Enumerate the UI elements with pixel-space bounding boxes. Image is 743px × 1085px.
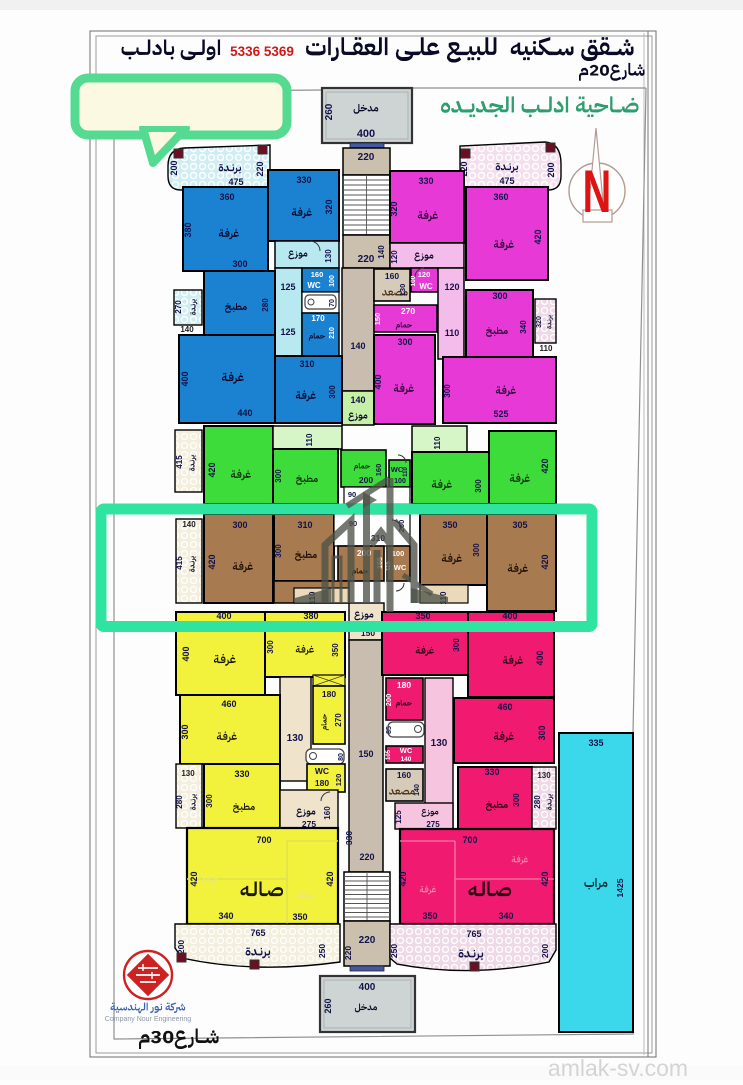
svg-text:310: 310: [299, 359, 314, 369]
svg-text:340: 340: [498, 911, 513, 921]
svg-text:140: 140: [350, 341, 365, 351]
svg-text:130: 130: [431, 738, 448, 749]
svg-text:270: 270: [401, 306, 415, 316]
svg-text:110: 110: [403, 467, 409, 477]
svg-text:380: 380: [183, 222, 193, 237]
svg-text:130: 130: [287, 733, 304, 744]
svg-text:100: 100: [392, 549, 405, 558]
svg-text:330: 330: [234, 769, 249, 779]
svg-text:130: 130: [537, 771, 551, 780]
svg-text:70: 70: [329, 299, 336, 307]
svg-text:200: 200: [359, 475, 373, 485]
svg-text:400: 400: [359, 982, 376, 993]
svg-text:400: 400: [535, 650, 545, 665]
svg-text:85: 85: [386, 726, 393, 734]
svg-text:220: 220: [358, 152, 375, 163]
svg-text:140: 140: [350, 395, 365, 405]
svg-text:Company Nour Engineering: Company Nour Engineering: [105, 1016, 191, 1023]
svg-text:350: 350: [422, 911, 437, 921]
svg-text:300: 300: [180, 724, 190, 739]
svg-text:WC: WC: [391, 465, 404, 474]
svg-text:120: 120: [390, 250, 399, 264]
svg-text:200: 200: [176, 940, 186, 954]
svg-text:110: 110: [433, 436, 442, 449]
svg-text:210: 210: [329, 327, 336, 339]
svg-text:220: 220: [343, 946, 353, 960]
svg-text:100: 100: [410, 275, 417, 286]
svg-text:120: 120: [334, 774, 343, 787]
svg-text:260: 260: [324, 103, 335, 120]
svg-text:320: 320: [389, 201, 399, 216]
svg-text:amlak-sv.com: amlak-sv.com: [548, 1055, 688, 1080]
svg-text:130: 130: [398, 284, 407, 297]
svg-text:120: 120: [418, 270, 431, 279]
svg-text:110: 110: [445, 328, 460, 338]
svg-text:110: 110: [305, 433, 314, 446]
svg-text:330: 330: [344, 831, 354, 845]
svg-text:280: 280: [533, 795, 542, 809]
svg-text:280: 280: [261, 298, 270, 312]
svg-text:420: 420: [398, 871, 408, 886]
svg-text:300: 300: [397, 337, 412, 347]
svg-text:330: 330: [296, 175, 311, 185]
svg-text:160: 160: [374, 464, 383, 477]
svg-text:475: 475: [499, 176, 514, 186]
svg-text:700: 700: [462, 835, 477, 845]
svg-text:350: 350: [292, 912, 307, 922]
svg-text:300: 300: [274, 544, 283, 558]
svg-text:5336 5369: 5336 5369: [230, 44, 294, 59]
svg-text:180: 180: [315, 778, 329, 788]
svg-text:340: 340: [519, 320, 528, 334]
svg-text:130: 130: [181, 769, 195, 778]
svg-text:300: 300: [328, 385, 337, 399]
svg-text:200: 200: [540, 944, 550, 958]
svg-text:475: 475: [228, 177, 243, 187]
svg-text:160: 160: [311, 270, 324, 279]
svg-text:420: 420: [325, 871, 335, 886]
svg-text:125: 125: [394, 810, 403, 824]
svg-text:300: 300: [443, 384, 452, 398]
svg-text:420: 420: [189, 871, 199, 886]
svg-text:400: 400: [180, 371, 190, 386]
svg-text:280: 280: [175, 795, 184, 809]
svg-text:220: 220: [358, 254, 375, 265]
svg-text:105: 105: [386, 749, 392, 760]
svg-text:130: 130: [324, 249, 333, 263]
svg-text:N: N: [583, 158, 612, 225]
svg-text:460: 460: [221, 699, 236, 709]
svg-text:350: 350: [442, 520, 457, 530]
svg-text:140: 140: [414, 784, 421, 796]
svg-text:765: 765: [466, 929, 481, 939]
svg-text:340: 340: [218, 911, 233, 921]
svg-text:420: 420: [540, 458, 550, 473]
svg-text:400: 400: [181, 646, 191, 661]
svg-text:420: 420: [540, 554, 550, 569]
svg-text:380: 380: [303, 611, 318, 621]
svg-text:420: 420: [207, 554, 217, 569]
svg-text:WC: WC: [394, 563, 407, 572]
svg-text:300: 300: [474, 479, 483, 493]
svg-text:80: 80: [338, 753, 345, 761]
svg-text:300: 300: [512, 793, 521, 807]
svg-text:110: 110: [540, 344, 553, 353]
svg-text:150: 150: [358, 749, 373, 759]
svg-text:270: 270: [334, 713, 343, 727]
svg-text:440: 440: [237, 408, 252, 418]
svg-text:300: 300: [492, 291, 507, 301]
svg-text:300: 300: [537, 725, 547, 740]
svg-text:220: 220: [359, 852, 374, 862]
svg-text:WC: WC: [315, 766, 329, 776]
svg-text:220: 220: [359, 935, 376, 946]
svg-text:200: 200: [384, 694, 393, 707]
svg-text:140: 140: [180, 325, 194, 334]
svg-text:330: 330: [484, 767, 499, 777]
svg-text:420: 420: [207, 462, 217, 477]
svg-text:525: 525: [493, 409, 508, 419]
svg-text:415: 415: [175, 556, 184, 570]
svg-text:100: 100: [394, 478, 406, 485]
svg-text:125: 125: [280, 282, 295, 292]
svg-text:275: 275: [426, 820, 440, 829]
svg-text:305: 305: [512, 520, 527, 530]
svg-text:200: 200: [169, 160, 179, 175]
svg-text:330: 330: [418, 176, 433, 186]
svg-text:420: 420: [540, 871, 550, 886]
svg-text:250: 250: [317, 944, 327, 958]
svg-text:125: 125: [280, 327, 295, 337]
svg-text:170: 170: [311, 314, 325, 323]
svg-text:250: 250: [389, 944, 399, 958]
svg-text:460: 460: [497, 702, 512, 712]
svg-text:150: 150: [373, 313, 382, 326]
svg-text:180: 180: [397, 680, 411, 690]
svg-text:300: 300: [274, 469, 283, 483]
svg-text:300: 300: [266, 640, 275, 654]
svg-text:335: 335: [588, 738, 603, 748]
svg-text:300: 300: [472, 543, 481, 557]
svg-text:360: 360: [219, 192, 234, 202]
svg-text:WC: WC: [307, 281, 321, 290]
svg-text:WC: WC: [400, 746, 413, 755]
svg-text:400: 400: [216, 611, 231, 621]
svg-text:350: 350: [331, 643, 340, 657]
svg-text:400: 400: [502, 611, 517, 621]
svg-text:140: 140: [401, 756, 412, 763]
svg-text:120: 120: [444, 282, 459, 292]
svg-text:160: 160: [323, 806, 332, 820]
svg-text:160: 160: [397, 770, 411, 780]
svg-text:415: 415: [175, 455, 184, 469]
svg-text:360: 360: [493, 192, 508, 202]
svg-text:180: 180: [322, 689, 336, 699]
svg-text:700: 700: [256, 835, 271, 845]
svg-text:140: 140: [377, 245, 386, 259]
svg-text:WC: WC: [419, 282, 433, 291]
svg-text:200: 200: [546, 162, 556, 177]
svg-text:310: 310: [297, 520, 312, 530]
svg-text:260: 260: [323, 998, 333, 1013]
svg-text:765: 765: [250, 928, 265, 938]
svg-text:220: 220: [255, 161, 265, 176]
svg-text:140: 140: [182, 520, 196, 529]
svg-text:300: 300: [452, 638, 461, 652]
svg-text:270: 270: [174, 300, 183, 314]
svg-text:400: 400: [357, 128, 375, 140]
svg-text:1425: 1425: [615, 878, 625, 897]
svg-text:160: 160: [385, 271, 399, 281]
svg-text:100: 100: [329, 275, 336, 287]
svg-text:420: 420: [533, 229, 543, 244]
svg-text:400: 400: [373, 374, 383, 389]
svg-text:320: 320: [536, 316, 543, 328]
svg-text:300: 300: [205, 794, 214, 808]
svg-text:320: 320: [324, 199, 334, 214]
svg-text:350: 350: [415, 611, 430, 621]
svg-text:300: 300: [232, 520, 247, 530]
svg-text:300: 300: [232, 259, 247, 269]
